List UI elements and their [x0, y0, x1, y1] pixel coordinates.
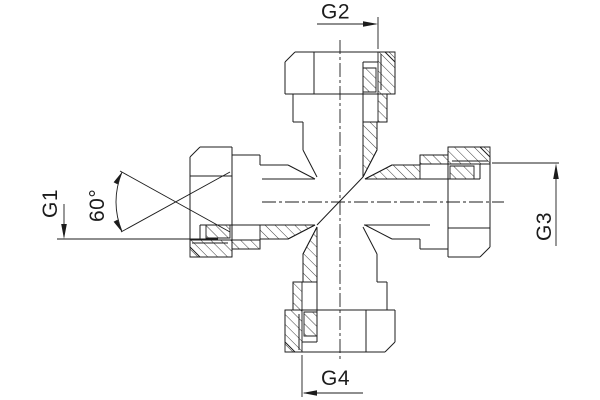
- port-left-cut-wall-2: [206, 225, 230, 238]
- port-right-outline: [365, 225, 392, 239]
- port-left-outline: [190, 147, 200, 157]
- label-angle-60: 60°: [86, 189, 109, 222]
- label-g4: G4: [321, 367, 350, 390]
- port-bottom-outline: [385, 342, 395, 352]
- port-top-cut-wall-1: [378, 94, 387, 122]
- port-left-cut-wall-1: [232, 240, 260, 249]
- port-right-cut-wall-2: [450, 166, 474, 179]
- port-top-cut-wall-2: [363, 68, 376, 92]
- label-g1: G1: [39, 189, 62, 218]
- dimension-angle-60: 60°: [86, 171, 230, 232]
- port-left-cut-wall-0: [190, 240, 232, 257]
- angle-leg-upper: [120, 171, 230, 232]
- port-left-outline: [288, 165, 315, 179]
- dimension-g2: G2: [317, 1, 378, 50]
- port-right-cut-wall-1: [420, 155, 448, 164]
- g1-arrowhead: [61, 224, 67, 239]
- label-g3: G3: [533, 212, 556, 241]
- port-top-outline: [285, 52, 295, 62]
- port-right-cut-wall-0: [448, 147, 490, 164]
- port-top-cut-wall-3: [363, 122, 377, 177]
- port-top-outline: [303, 150, 317, 177]
- angle-arc-arrow-bottom: [114, 220, 122, 232]
- port-left-cut-wall-3: [260, 225, 315, 239]
- angle-arc-arrow-top: [114, 172, 122, 184]
- port-bottom-cut-wall-1: [293, 282, 302, 310]
- dimension-g1: G1: [39, 189, 218, 239]
- port-top-cut-wall-0: [378, 52, 395, 94]
- port-bottom-cut-wall-2: [304, 312, 317, 336]
- technical-drawing-svg: G2 G4 G1 G3 60°: [0, 0, 600, 400]
- port-right-cut-wall-3: [365, 165, 420, 179]
- g3-arrowhead: [553, 164, 559, 180]
- label-g2: G2: [321, 1, 350, 24]
- g2-arrowhead: [363, 21, 378, 27]
- port-right-outline: [480, 247, 490, 257]
- port-bottom-cut-wall-0: [285, 310, 302, 352]
- drawing-canvas: G2 G4 G1 G3 60°: [0, 0, 600, 400]
- dimension-g4: G4: [302, 355, 363, 397]
- port-bottom-cut-wall-3: [303, 227, 317, 282]
- bore-lines: [262, 177, 430, 225]
- dimension-g3: G3: [492, 163, 559, 246]
- port-bottom-outline: [363, 227, 377, 254]
- g4-arrowhead: [303, 390, 318, 396]
